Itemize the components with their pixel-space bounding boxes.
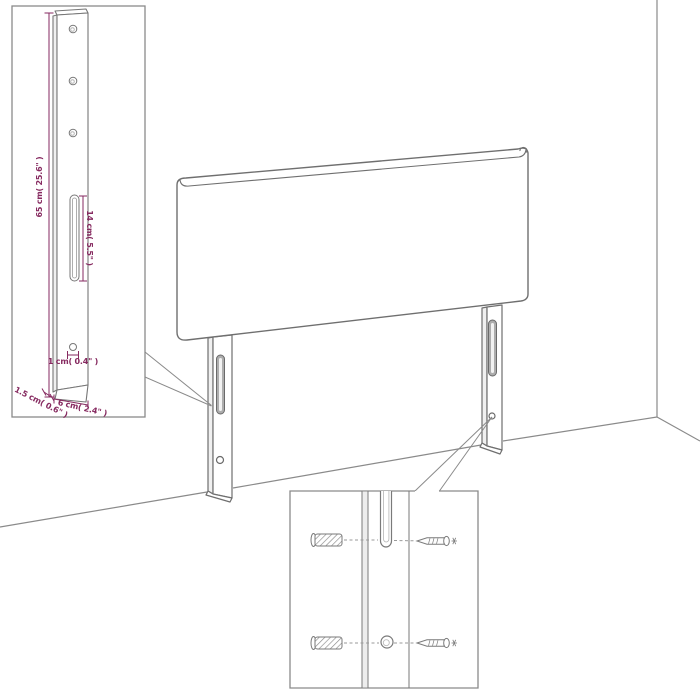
strut-side-face xyxy=(53,15,57,392)
floor-line-left-2 xyxy=(233,445,481,488)
left-leg-slot-inner xyxy=(219,358,222,411)
headboard-panel xyxy=(177,147,528,340)
right-leg-slot-inner xyxy=(491,323,494,373)
inset-mounting-detail xyxy=(290,491,478,688)
mounting-slot xyxy=(381,491,392,547)
left-leg-side-face xyxy=(208,337,213,494)
strut-small-hole xyxy=(70,344,77,351)
strut-slot-inner xyxy=(73,198,77,278)
callout-lines-leg-detail xyxy=(145,352,212,406)
diagram-canvas xyxy=(0,0,700,700)
floor-line-right xyxy=(657,417,700,441)
dim-label-hole: 1 cm( 0.4" ) xyxy=(38,357,108,367)
headboard-assembly-diagram: 65 cm( 25.6" ) 14 cm( 5.5" ) 1 cm( 0.4" … xyxy=(0,0,700,700)
dim-label-height: 65 cm( 25.6" ) xyxy=(35,147,45,227)
headboard-panel-outline xyxy=(177,148,528,340)
dim-label-slot: 14 cm( 5.5" ) xyxy=(84,203,94,273)
mounting-hole xyxy=(381,636,393,648)
inset-leg-detail xyxy=(12,6,145,417)
headboard-left-leg xyxy=(206,335,232,502)
wall-plug-icon-top xyxy=(311,534,342,547)
mounting-strut-side-face xyxy=(362,492,368,688)
floor-line-left-1 xyxy=(0,492,207,527)
headboard-right-leg xyxy=(480,305,502,454)
left-leg-hole xyxy=(217,457,224,464)
floor-line-left-3 xyxy=(503,417,657,441)
wall-plug-icon-bottom xyxy=(311,637,342,650)
right-leg-hole xyxy=(489,413,495,419)
